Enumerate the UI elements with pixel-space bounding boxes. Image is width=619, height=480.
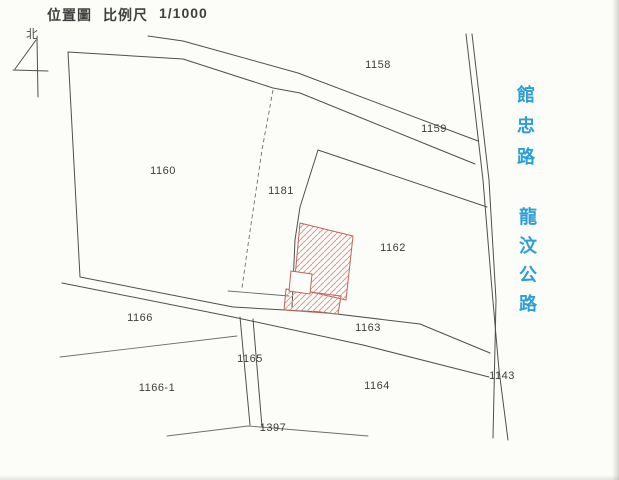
parcel-label-1159: 1159 — [421, 123, 447, 135]
parcel-label-1158: 1158 — [365, 59, 391, 71]
parcel-boundaries — [60, 34, 508, 440]
parcel-label-1166-1: 1166-1 — [139, 382, 175, 394]
parcel-label-1143: 1143 — [489, 370, 515, 382]
parcel-label-1162: 1162 — [380, 242, 406, 254]
road-name-char: 路 — [519, 295, 537, 313]
road-name-longwen: 龍汶公路 — [519, 208, 537, 313]
scan-edge-shadow-right — [612, 0, 619, 480]
parcel-label-1164: 1164 — [364, 380, 390, 392]
parcel-label-1397: 1397 — [260, 422, 286, 434]
road-name-char: 忠 — [517, 117, 535, 135]
parcel-label-1163: 1163 — [355, 322, 381, 334]
parcel-label-1165: 1165 — [237, 353, 263, 365]
cadastral-location-map: 位置圖 比例尺 1/1000 北 — [0, 0, 619, 480]
parcel-label-1181: 1181 — [268, 185, 294, 197]
road-name-guanzhong: 館忠路 — [517, 86, 535, 166]
scan-edge-shadow-bottom — [0, 475, 619, 480]
road-name-char: 汶 — [519, 237, 537, 255]
road-name-char: 公 — [519, 266, 537, 284]
road-name-char: 龍 — [519, 208, 537, 226]
road-name-char: 館 — [517, 86, 535, 104]
building-footprint — [284, 223, 353, 314]
north-arrow-icon — [13, 38, 48, 97]
road-name-char: 路 — [517, 148, 535, 166]
parcel-label-1160: 1160 — [150, 165, 176, 177]
parcel-label-1166: 1166 — [127, 312, 153, 324]
